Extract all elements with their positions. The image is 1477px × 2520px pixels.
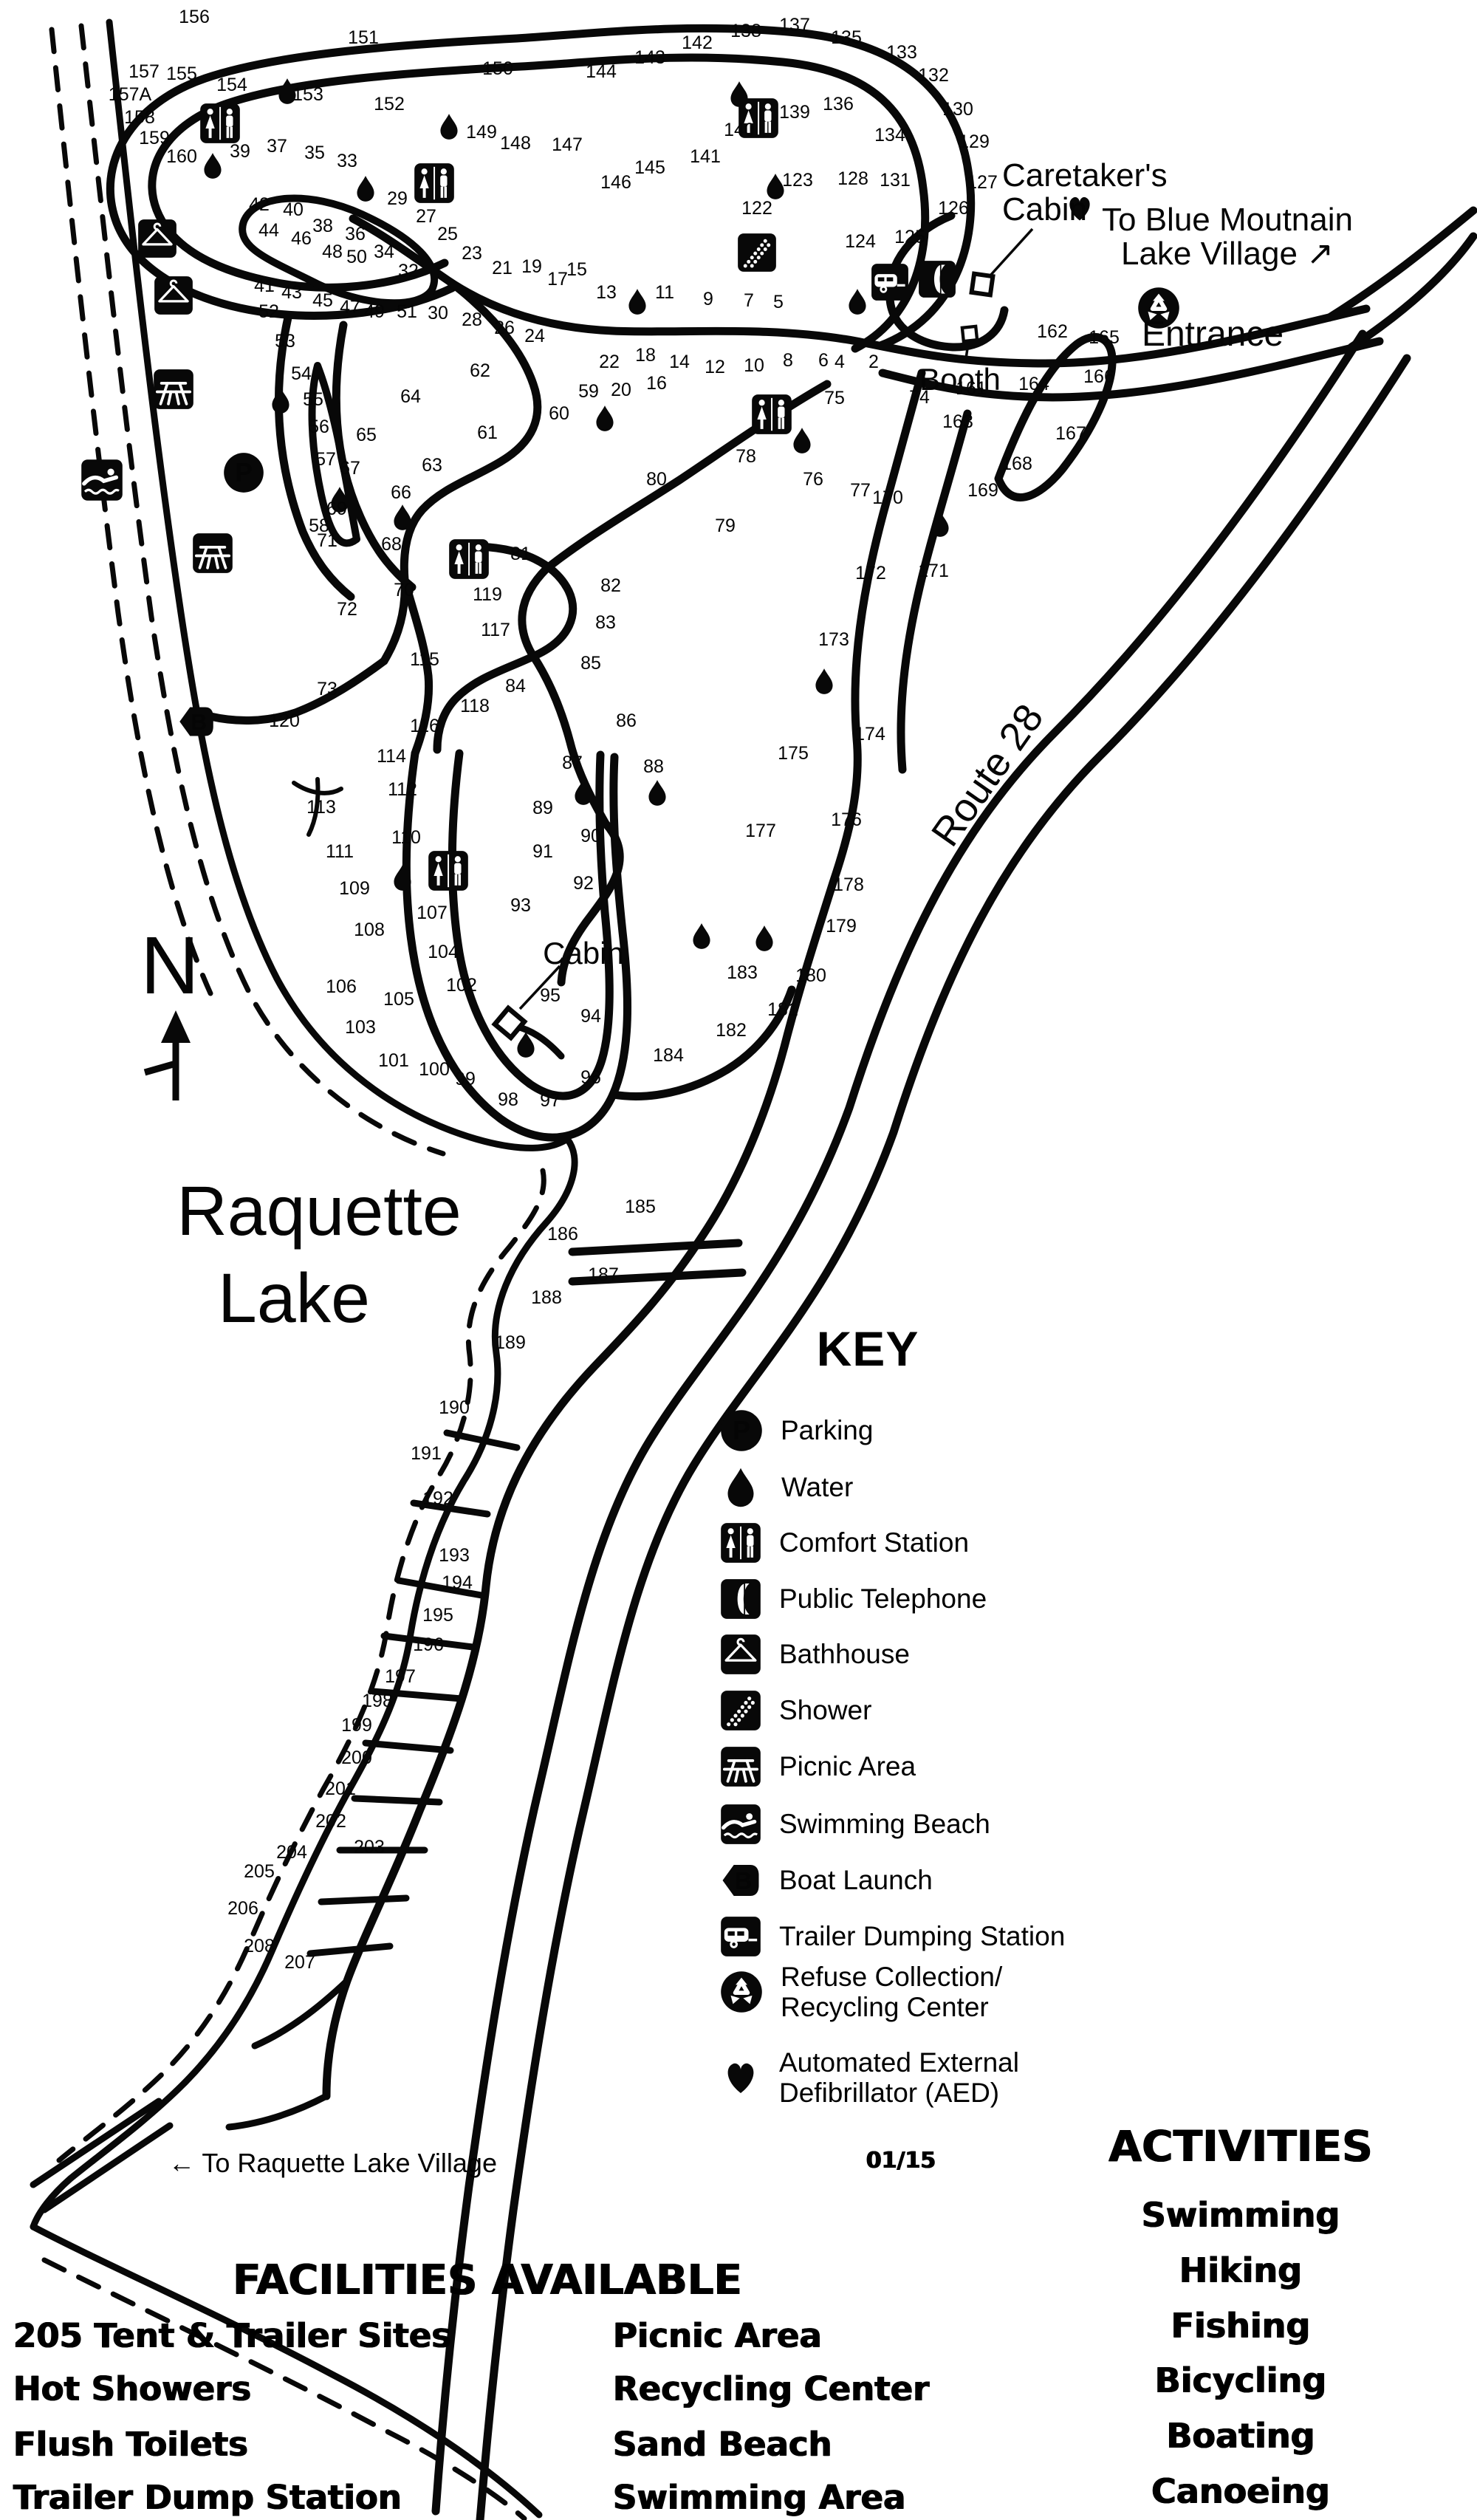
key-label: Swimming Beach bbox=[779, 1809, 990, 1839]
activity-item: Boating bbox=[945, 2416, 1477, 2456]
map-text: N bbox=[140, 920, 199, 1011]
site-number: 26 bbox=[494, 318, 515, 338]
site-number: 163 bbox=[942, 411, 973, 432]
site-number: 134 bbox=[874, 125, 905, 145]
map-text: To Blue Moutnain bbox=[1102, 202, 1353, 238]
site-number: 98 bbox=[498, 1089, 518, 1110]
lake-depth-line-2 bbox=[52, 30, 210, 993]
site-number: 17 bbox=[547, 269, 568, 290]
site-number: 198 bbox=[362, 1691, 393, 1711]
site-number: 99 bbox=[455, 1069, 476, 1089]
site-number: 114 bbox=[377, 746, 406, 767]
site-number: 68 bbox=[381, 534, 402, 555]
site-number: 51 bbox=[397, 301, 417, 322]
activities-title: ACTIVITIES bbox=[945, 2121, 1477, 2171]
site-number: 175 bbox=[778, 743, 809, 764]
site-number: 43 bbox=[281, 282, 302, 303]
square-icon bbox=[972, 274, 993, 295]
picnic-icon bbox=[193, 533, 233, 573]
site-number: 38 bbox=[312, 216, 333, 236]
site-number: 115 bbox=[410, 649, 439, 670]
site-number: 106 bbox=[326, 976, 357, 997]
site-number: 52 bbox=[258, 301, 279, 322]
site-number: 180 bbox=[795, 965, 826, 986]
map-text: Lake bbox=[218, 1259, 370, 1338]
road-central-1 bbox=[384, 282, 538, 661]
site-number: 176 bbox=[831, 809, 862, 830]
site-number: 204 bbox=[276, 1842, 307, 1863]
north-arrow-icon bbox=[145, 1010, 191, 1100]
comfort-station-icon bbox=[720, 1522, 761, 1564]
site-number: 79 bbox=[715, 516, 736, 536]
site-number: 75 bbox=[824, 388, 845, 408]
site-number: 113 bbox=[306, 797, 336, 818]
key-label: Boat Launch bbox=[779, 1865, 933, 1895]
site-number: 88 bbox=[643, 756, 664, 777]
comfort-icon bbox=[200, 103, 240, 143]
water-icon bbox=[394, 504, 411, 530]
facility-item: Picnic Area bbox=[613, 2316, 822, 2355]
site-number: 56 bbox=[309, 417, 329, 437]
site-number: 95 bbox=[540, 985, 561, 1006]
site-number: 191 bbox=[411, 1443, 442, 1464]
site-number: 127 bbox=[967, 172, 998, 193]
parking-icon bbox=[720, 1409, 763, 1452]
site-number: 142 bbox=[682, 32, 713, 53]
water-icon bbox=[575, 779, 592, 805]
site-number: 11 bbox=[655, 282, 674, 303]
site-number: 109 bbox=[339, 878, 370, 899]
water-icon bbox=[849, 289, 866, 315]
key-row-water: Water bbox=[725, 1467, 853, 1508]
site-number: 117 bbox=[481, 620, 510, 640]
site-number: 153 bbox=[292, 84, 323, 105]
picnic-area-icon bbox=[720, 1746, 761, 1787]
comfort-icon bbox=[752, 394, 792, 434]
road-cross-186-1 bbox=[572, 1243, 738, 1252]
site-number: 203 bbox=[354, 1837, 385, 1858]
site-number: 202 bbox=[315, 1811, 346, 1832]
site-number: 177 bbox=[745, 821, 776, 841]
site-number: 125 bbox=[894, 227, 925, 247]
site-number: 39 bbox=[230, 141, 250, 162]
site-number: 167 bbox=[1055, 423, 1086, 444]
site-number: 28 bbox=[462, 309, 482, 330]
site-number: 128 bbox=[837, 168, 868, 189]
water-icon bbox=[931, 511, 948, 537]
site-number: 49 bbox=[364, 301, 385, 322]
campground-map-page: P B bbox=[0, 0, 1477, 2520]
site-number: 46 bbox=[291, 228, 312, 249]
site-number: 184 bbox=[653, 1045, 684, 1066]
site-number: 144 bbox=[586, 61, 617, 82]
site-number: 12 bbox=[705, 357, 725, 377]
site-number: 183 bbox=[727, 962, 758, 983]
key-label: Bathhouse bbox=[779, 1639, 910, 1669]
site-number: 54 bbox=[291, 363, 312, 384]
site-number: 143 bbox=[634, 47, 665, 68]
site-number: 171 bbox=[918, 561, 949, 581]
key-label: Shower bbox=[779, 1695, 871, 1725]
site-number: 131 bbox=[880, 170, 911, 191]
site-number: 35 bbox=[304, 143, 325, 163]
facility-item: Hot Showers bbox=[13, 2369, 251, 2408]
boat-launch-icon bbox=[720, 1860, 761, 1901]
facility-item: Flush Toilets bbox=[13, 2425, 248, 2464]
site-number: 154 bbox=[216, 75, 247, 95]
key-row-aed: Automated External Defibrillator (AED) bbox=[720, 2047, 1019, 2109]
map-text: Raquette bbox=[177, 1172, 462, 1250]
water-icon bbox=[440, 114, 457, 140]
site-number: 139 bbox=[779, 102, 810, 123]
site-number: 181 bbox=[767, 999, 798, 1020]
site-number: 206 bbox=[227, 1898, 258, 1919]
site-number: 96 bbox=[580, 1067, 601, 1088]
site-number: 9 bbox=[703, 289, 713, 309]
site-number: 76 bbox=[803, 469, 823, 490]
water-icon bbox=[204, 153, 221, 179]
site-number: 169 bbox=[967, 480, 998, 501]
site-number: 190 bbox=[439, 1397, 470, 1418]
site-number: 72 bbox=[337, 599, 357, 620]
key-label: Public Telephone bbox=[779, 1583, 987, 1614]
site-number: 61 bbox=[477, 422, 498, 443]
site-number: 65 bbox=[356, 425, 377, 445]
key-label: Picnic Area bbox=[779, 1751, 916, 1781]
key-label: Automated External Defibrillator (AED) bbox=[779, 2047, 1019, 2109]
site-number: 69 bbox=[326, 499, 347, 519]
site-number: 179 bbox=[826, 916, 857, 937]
site-number: 41 bbox=[254, 275, 275, 296]
shower-icon bbox=[738, 233, 776, 272]
site-number: 173 bbox=[818, 629, 849, 650]
map-text: Booth bbox=[919, 362, 1001, 397]
trailer-dumping-icon bbox=[720, 1916, 761, 1957]
site-number: 55 bbox=[303, 389, 323, 410]
site-number: 44 bbox=[258, 220, 279, 241]
site-number: 110 bbox=[391, 827, 421, 848]
key-row-swimming-beach: Swimming Beach bbox=[720, 1804, 990, 1845]
site-number: 89 bbox=[532, 798, 553, 818]
site-number: 152 bbox=[374, 94, 405, 114]
activity-item: Canoeing bbox=[945, 2471, 1477, 2511]
map-text: Lake Village ↗ bbox=[1121, 236, 1334, 272]
site-number: 33 bbox=[337, 151, 357, 171]
key-label: Trailer Dumping Station bbox=[779, 1921, 1065, 1951]
boat-icon bbox=[179, 708, 213, 736]
site-number: 78 bbox=[736, 446, 756, 467]
site-number: 36 bbox=[345, 224, 366, 244]
site-number: 71 bbox=[317, 530, 337, 551]
key-row-boat-launch: Boat Launch bbox=[720, 1860, 933, 1901]
parking-icon bbox=[224, 453, 264, 493]
site-number: 147 bbox=[552, 134, 583, 155]
key-label: Water bbox=[781, 1472, 853, 1502]
site-number: 193 bbox=[439, 1545, 470, 1566]
comfort-icon bbox=[428, 851, 468, 891]
key-title: KEY bbox=[750, 1321, 986, 1377]
site-number: 138 bbox=[730, 21, 761, 41]
site-number: 130 bbox=[942, 99, 973, 120]
key-label: Comfort Station bbox=[779, 1527, 969, 1558]
site-number: 73 bbox=[317, 679, 337, 699]
road-cabin-spur bbox=[613, 990, 792, 1096]
key-row-public-telephone: Public Telephone bbox=[720, 1578, 987, 1620]
key-row-trailer-dumping: Trailer Dumping Station bbox=[720, 1916, 1065, 1957]
site-number: 133 bbox=[886, 42, 917, 63]
site-number: 205 bbox=[244, 1861, 275, 1882]
map-text: Caretaker's bbox=[1002, 157, 1168, 194]
site-number: 207 bbox=[284, 1952, 315, 1973]
water-icon bbox=[357, 176, 374, 202]
site-number: 77 bbox=[850, 480, 871, 501]
site-number: 196 bbox=[413, 1634, 444, 1655]
site-number: 136 bbox=[823, 94, 854, 114]
site-number: 57 bbox=[315, 449, 336, 470]
bathhouse-icon bbox=[720, 1634, 761, 1675]
square-icon bbox=[962, 326, 977, 341]
site-number: 20 bbox=[611, 380, 631, 400]
site-number: 192 bbox=[422, 1488, 453, 1509]
water-icon bbox=[815, 668, 832, 694]
key-row-parking: Parking bbox=[720, 1409, 873, 1452]
water-icon bbox=[693, 923, 710, 949]
site-number: 45 bbox=[312, 290, 333, 311]
site-number: 174 bbox=[854, 724, 885, 744]
water-icon bbox=[628, 289, 645, 315]
site-number: 34 bbox=[374, 242, 394, 262]
site-number: 194 bbox=[442, 1572, 473, 1593]
site-number: 123 bbox=[782, 170, 813, 191]
site-number: 101 bbox=[378, 1050, 409, 1071]
site-number: 107 bbox=[417, 903, 448, 923]
lake-shoreline bbox=[33, 22, 575, 2227]
site-number: 105 bbox=[383, 989, 414, 1010]
water-icon bbox=[272, 388, 289, 414]
key-row-bathhouse: Bathhouse bbox=[720, 1634, 910, 1675]
road-central-2 bbox=[522, 384, 827, 982]
facility-item: Recycling Center bbox=[613, 2369, 929, 2408]
site-number: 94 bbox=[580, 1006, 601, 1027]
site-number: 63 bbox=[422, 455, 442, 476]
site-number: 80 bbox=[646, 469, 667, 490]
site-number: 135 bbox=[831, 27, 862, 48]
site-number: 104 bbox=[428, 942, 459, 962]
phone-icon bbox=[919, 261, 956, 298]
site-number: 150 bbox=[482, 58, 513, 79]
site-number: 122 bbox=[741, 198, 772, 219]
site-number: 155 bbox=[166, 64, 197, 84]
shore-site-stubs bbox=[229, 1433, 517, 2127]
site-number: 60 bbox=[549, 403, 569, 424]
site-number: 120 bbox=[269, 711, 300, 731]
site-number: 186 bbox=[547, 1224, 578, 1244]
site-number: 151 bbox=[348, 27, 379, 48]
site-number: 97 bbox=[540, 1090, 561, 1111]
site-number: 4 bbox=[835, 352, 845, 372]
key-row-recycling: Refuse Collection/ Recycling Center bbox=[720, 1962, 1002, 2023]
site-number: 59 bbox=[578, 381, 599, 402]
site-number: 165 bbox=[1089, 327, 1120, 348]
site-number: 2 bbox=[868, 352, 879, 372]
site-number: 200 bbox=[341, 1747, 372, 1768]
site-number: 162 bbox=[1037, 321, 1068, 342]
site-number: 100 bbox=[419, 1059, 450, 1080]
site-number: 19 bbox=[521, 256, 542, 277]
site-number: 81 bbox=[510, 544, 531, 564]
bathhouse-icon bbox=[154, 276, 193, 315]
site-number: 16 bbox=[646, 373, 667, 394]
site-number: 66 bbox=[391, 482, 411, 503]
site-number: 157A bbox=[109, 84, 152, 105]
site-number: 21 bbox=[492, 258, 513, 278]
site-number: 146 bbox=[600, 172, 631, 193]
to-raquette-lake-village-label: ← To Raquette Lake Village bbox=[168, 2148, 497, 2179]
site-number: 14 bbox=[669, 352, 690, 372]
site-number: 8 bbox=[783, 350, 793, 371]
site-number: 6 bbox=[818, 350, 829, 371]
site-number: 24 bbox=[524, 326, 545, 346]
site-number: 157 bbox=[128, 61, 160, 82]
road-access-edge bbox=[901, 414, 967, 770]
picnic-icon bbox=[154, 369, 193, 409]
site-number: 23 bbox=[462, 243, 482, 264]
facility-item: Trailer Dump Station bbox=[13, 2478, 402, 2517]
site-number: 47 bbox=[340, 297, 360, 318]
site-number: 126 bbox=[938, 198, 969, 219]
route-28-line-1 bbox=[436, 334, 1363, 2511]
site-number: 124 bbox=[845, 231, 876, 252]
key-label: Parking bbox=[781, 1415, 873, 1445]
site-number: 195 bbox=[422, 1605, 453, 1626]
site-number: 86 bbox=[616, 711, 637, 731]
site-number: 116 bbox=[410, 716, 439, 736]
site-number: 53 bbox=[275, 331, 295, 352]
recycling-icon bbox=[720, 1971, 763, 2013]
site-number: 84 bbox=[505, 676, 526, 696]
site-number: 15 bbox=[566, 259, 587, 280]
swimming-beach-icon bbox=[720, 1804, 761, 1845]
site-number: 37 bbox=[267, 136, 287, 157]
site-number: 140 bbox=[724, 120, 755, 140]
water-icon bbox=[793, 428, 810, 453]
site-number: 62 bbox=[470, 360, 490, 381]
site-number: 90 bbox=[580, 826, 601, 846]
site-number: 67 bbox=[340, 458, 360, 479]
site-number: 18 bbox=[635, 345, 656, 366]
site-number: 10 bbox=[744, 355, 764, 376]
water-icon bbox=[767, 174, 784, 199]
site-number: 22 bbox=[599, 352, 620, 372]
shower-icon bbox=[720, 1690, 761, 1731]
site-number: 83 bbox=[595, 612, 616, 633]
site-number: 166 bbox=[1083, 366, 1114, 387]
facility-item: Sand Beach bbox=[613, 2425, 832, 2464]
water-icon bbox=[648, 780, 665, 806]
site-number: 118 bbox=[460, 696, 490, 716]
site-number: 148 bbox=[500, 133, 531, 154]
square-icon bbox=[495, 1008, 524, 1038]
map-text: Cabin bbox=[1002, 191, 1087, 227]
comfort-icon bbox=[449, 539, 489, 579]
site-number: 149 bbox=[466, 122, 497, 143]
key-label: Refuse Collection/ Recycling Center bbox=[781, 1962, 1002, 2023]
site-number: 187 bbox=[588, 1264, 619, 1285]
site-number: 129 bbox=[959, 131, 990, 152]
map-text: Cabin bbox=[543, 936, 624, 970]
site-number: 160 bbox=[166, 146, 197, 167]
site-number: 85 bbox=[580, 653, 601, 674]
site-number: 168 bbox=[1001, 453, 1032, 474]
site-number: 27 bbox=[416, 206, 436, 227]
site-number: 199 bbox=[341, 1715, 372, 1736]
site-number: 189 bbox=[495, 1332, 526, 1353]
trailer-icon bbox=[871, 264, 908, 301]
facility-item: Swimming Area bbox=[613, 2478, 905, 2517]
site-number: 182 bbox=[716, 1020, 747, 1041]
site-number: 188 bbox=[531, 1287, 562, 1308]
site-number: 50 bbox=[346, 247, 367, 267]
site-number: 30 bbox=[428, 303, 448, 323]
site-number: 25 bbox=[437, 224, 458, 244]
facilities-title: FACILITIES AVAILABLE bbox=[118, 2256, 857, 2304]
public-telephone-icon bbox=[720, 1578, 761, 1620]
site-number: 40 bbox=[283, 199, 304, 220]
activity-item: Swimming bbox=[945, 2195, 1477, 2235]
site-number: 185 bbox=[625, 1196, 656, 1217]
site-number: 82 bbox=[600, 575, 621, 596]
site-number: 32 bbox=[398, 261, 419, 281]
site-number: 70 bbox=[394, 580, 414, 600]
aed-heart-icon bbox=[720, 2057, 761, 2098]
site-number: 108 bbox=[354, 920, 385, 940]
site-number: 164 bbox=[1018, 374, 1049, 394]
swim-icon bbox=[81, 459, 123, 501]
site-number: 5 bbox=[773, 292, 784, 312]
facility-item: 205 Tent & Trailer Sites bbox=[13, 2316, 451, 2355]
activity-item: Bicycling bbox=[945, 2360, 1477, 2400]
site-number: 64 bbox=[400, 386, 421, 407]
site-number: 112 bbox=[388, 779, 417, 800]
site-number: 172 bbox=[855, 563, 886, 583]
site-number: 132 bbox=[918, 65, 949, 86]
leader-line bbox=[990, 229, 1032, 276]
water-icon bbox=[755, 925, 772, 951]
site-number: 102 bbox=[446, 975, 477, 996]
site-number: 103 bbox=[345, 1017, 376, 1038]
comfort-icon bbox=[414, 163, 454, 203]
site-number: 91 bbox=[532, 841, 553, 862]
site-number: 111 bbox=[326, 841, 354, 862]
site-number: 92 bbox=[573, 873, 594, 894]
bathhouse-icon bbox=[138, 219, 177, 258]
map-text: Entrance bbox=[1142, 315, 1284, 354]
site-number: 156 bbox=[179, 7, 210, 27]
site-number: 7 bbox=[744, 290, 754, 311]
activity-item: Fishing bbox=[945, 2306, 1477, 2346]
site-number: 197 bbox=[385, 1666, 416, 1687]
site-number: 42 bbox=[249, 194, 270, 215]
site-number: 29 bbox=[387, 188, 408, 209]
site-number: 48 bbox=[322, 242, 343, 262]
site-number: 159 bbox=[139, 128, 170, 148]
site-number: 137 bbox=[779, 15, 810, 35]
activity-item: Hiking bbox=[945, 2250, 1477, 2290]
site-number: 87 bbox=[562, 753, 583, 773]
water-icon bbox=[725, 1467, 756, 1508]
site-number: 141 bbox=[690, 146, 721, 167]
key-row-comfort-station: Comfort Station bbox=[720, 1522, 969, 1564]
